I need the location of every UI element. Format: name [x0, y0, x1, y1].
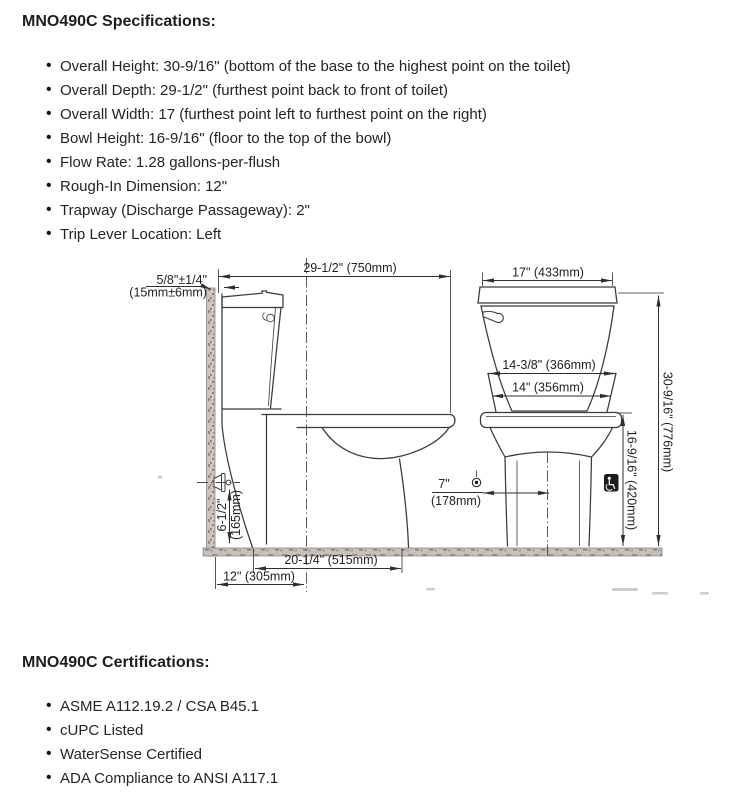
toilet-side-view — [214, 291, 455, 548]
floor-section — [203, 548, 662, 556]
wall-section — [207, 288, 216, 556]
dim-overall-width-label: 17" (433mm) — [512, 266, 584, 280]
ada-wheelchair-icon — [604, 474, 619, 492]
dim-bowl-height-label: 16-9/16" (420mm) — [625, 430, 639, 530]
spec-sheet-page: MNO490C Specifications: Overall Height: … — [0, 0, 743, 805]
bowl-underside-curve — [322, 428, 449, 459]
spec-item-bowl-height: Bowl Height: 16-9/16" (floor to the top … — [0, 127, 571, 151]
tank-front-line — [271, 308, 282, 409]
dim-bowl-height: 16-9/16" (420mm) — [617, 413, 639, 546]
specifications-heading: MNO490C Specifications: — [22, 12, 216, 32]
dim-bowl-width-label: 14" (356mm) — [512, 381, 584, 395]
supply-target-icon — [472, 471, 480, 487]
spec-item-rough-in: Rough-In Dimension: 12" — [0, 175, 571, 199]
dim-wall-gap-label-mm: (15mm±6mm) — [129, 286, 207, 300]
specifications-list: Overall Height: 30-9/16" (bottom of the … — [0, 55, 571, 247]
dim-supply-offset: 7" (178mm) — [431, 477, 549, 508]
spec-item-overall-width: Overall Width: 17 (furthest point left t… — [0, 103, 571, 127]
dim-rough-in-label: 12" (305mm) — [223, 570, 295, 584]
spec-item-trip-lever: Trip Lever Location: Left — [0, 223, 571, 247]
toilet-front-view — [472, 287, 621, 546]
certifications-list: ASME A112.19.2 / CSA B45.1 cUPC Listed W… — [0, 695, 278, 791]
dim-overall-width: 17" (433mm) — [483, 266, 613, 287]
dim-overall-depth: 29-1/2" (750mm) — [219, 261, 451, 413]
tank-lid-side — [222, 291, 283, 308]
spec-item-trapway: Trapway (Discharge Passageway): 2" — [0, 199, 571, 223]
pedestal-front-line — [400, 459, 409, 548]
dim-seat-width-label: 14-3/8" (366mm) — [502, 358, 595, 372]
dim-overall-depth-label: 29-1/2" (750mm) — [303, 261, 396, 275]
toilet-dimension-diagram: 5/8"±1/4" (15mm±6mm) 29-1/2" (750mm) 17"… — [115, 250, 725, 622]
dim-supply-height: 6-1/2" (165mm) — [215, 490, 243, 544]
cert-item-cupc: cUPC Listed — [0, 719, 278, 743]
bowl-rim-front-curve — [448, 415, 455, 428]
dim-supply-offset-label-in: 7" — [438, 477, 449, 491]
dim-supply-height-label-mm: (165mm) — [229, 490, 243, 540]
certifications-heading: MNO490C Certifications: — [22, 653, 210, 673]
trapway-arch-curve — [505, 452, 592, 457]
seat-slab — [481, 413, 622, 428]
spec-item-overall-depth: Overall Depth: 29-1/2" (furthest point b… — [0, 79, 571, 103]
spec-item-overall-height: Overall Height: 30-9/16" (bottom of the … — [0, 55, 571, 79]
flush-valve-side-icon — [263, 313, 275, 322]
dim-supply-height-label-in: 6-1/2" — [215, 499, 229, 532]
tank-lid-front — [478, 287, 617, 303]
cert-item-ada: ADA Compliance to ANSI A117.1 — [0, 767, 278, 791]
dim-base-depth-label: 20-1/4" (515mm) — [284, 553, 377, 567]
spec-item-flow-rate: Flow Rate: 1.28 gallons-per-flush — [0, 151, 571, 175]
bowl-and-pedestal-front — [490, 428, 613, 547]
dim-supply-offset-label-mm: (178mm) — [431, 494, 481, 508]
cert-item-asme: ASME A112.19.2 / CSA B45.1 — [0, 695, 278, 719]
dim-overall-height-label: 30-9/16" (776mm) — [661, 372, 675, 472]
cert-item-watersense: WaterSense Certified — [0, 743, 278, 767]
